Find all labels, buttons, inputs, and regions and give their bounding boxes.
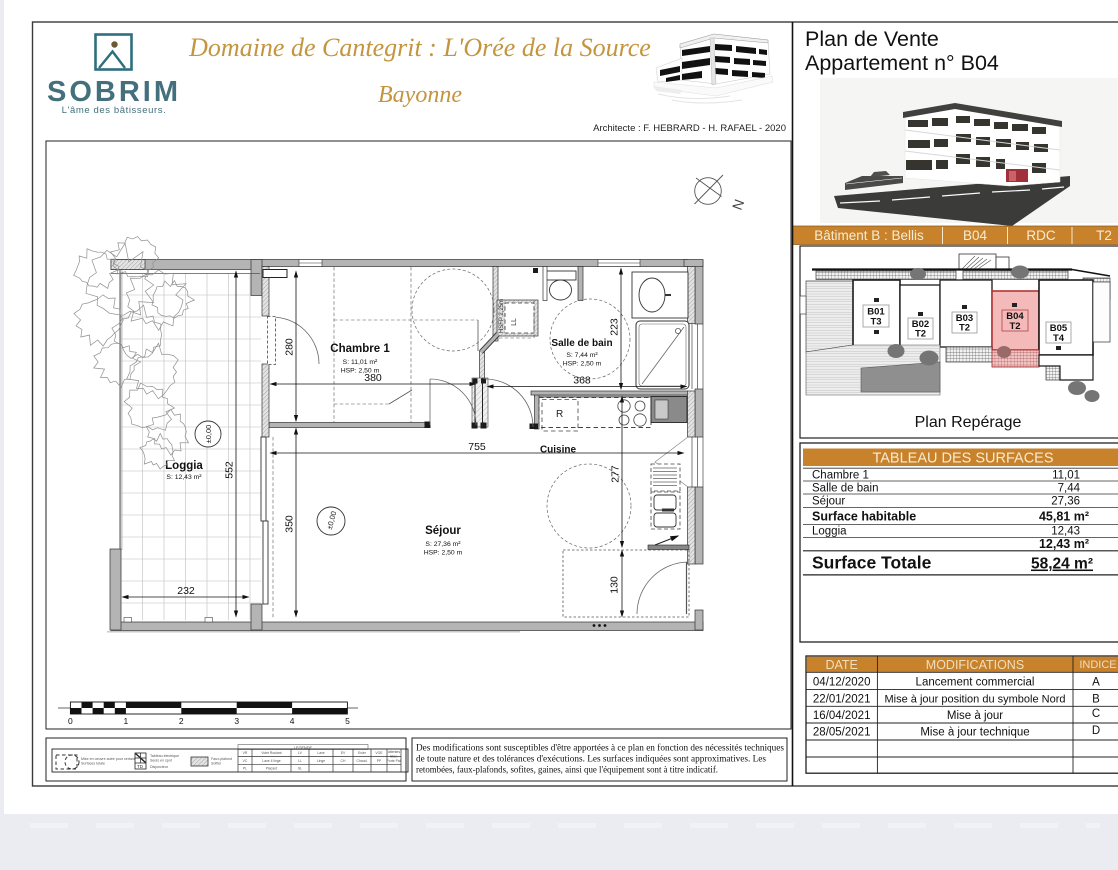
svg-text:04/12/2020: 04/12/2020 [813,677,871,689]
svg-text:Disjoncteur: Disjoncteur [150,765,169,769]
svg-text:S: 7,44 m²: S: 7,44 m² [566,352,598,359]
svg-text:Lave 4 linge: Lave 4 linge [262,759,280,763]
svg-text:Faux-plafond: Faux-plafond [211,757,232,761]
svg-text:Mise à jour: Mise à jour [947,710,1003,722]
svg-text:Salle de bain: Salle de bain [812,482,879,494]
svg-text:Porte Pal.: Porte Pal. [387,759,402,763]
svg-text:Mise à jour technique: Mise à jour technique [920,727,1029,739]
svg-text:A: A [1092,677,1100,689]
svg-text:S: 11,01 m²: S: 11,01 m² [343,359,378,366]
svg-text:Lancement commercial: Lancement commercial [916,677,1035,689]
svg-text:0: 0 [68,716,73,726]
svg-text:3: 3 [234,716,239,726]
svg-text:SL: SL [298,767,302,771]
svg-text:Mise à jour position du symbol: Mise à jour position du symbole Nord [885,693,1066,705]
svg-text:T2: T2 [1009,321,1020,332]
svg-text:R: R [556,409,563,420]
svg-text:130: 130 [609,576,621,594]
svg-text:Sofitel: Sofitel [211,762,221,766]
svg-text:350: 350 [284,515,296,533]
svg-text:Séjour: Séjour [425,525,461,537]
svg-text:Séjour: Séjour [812,495,845,507]
svg-text:T4: T4 [1053,333,1065,344]
svg-text:755: 755 [468,441,486,453]
svg-text:B: B [1092,693,1100,705]
svg-text:INDICE: INDICE [1079,659,1116,671]
svg-text:Surfaces totale: Surfaces totale [81,762,105,766]
svg-text:Salle de bain: Salle de bain [551,338,612,349]
svg-text:Plan de Vente: Plan de Vente [805,27,939,51]
svg-text:T2: T2 [915,329,926,340]
svg-text:T3: T3 [870,317,881,328]
svg-text:TABLEAU DES SURFACES: TABLEAU DES SURFACES [872,451,1053,467]
svg-text:LV: LV [298,751,303,755]
svg-text:7,44: 7,44 [1058,482,1081,494]
svg-text:5: 5 [345,716,350,726]
svg-text:Surface Totale: Surface Totale [812,553,932,573]
svg-text:16/04/2021: 16/04/2021 [813,710,871,722]
svg-text:28/05/2021: 28/05/2021 [813,727,871,739]
svg-text:22/01/2021: 22/01/2021 [813,693,871,705]
svg-text:Chambre 1: Chambre 1 [812,470,869,482]
svg-text:attentes: attentes [388,750,400,754]
svg-text:±0,00: ±0,00 [204,425,213,444]
svg-text:Elec.: Elec. [390,755,398,759]
svg-text:1: 1 [124,716,129,726]
svg-text:HSP: 2,50 m: HSP: 2,50 m [341,368,380,375]
svg-text:Placard: Placard [266,767,278,771]
svg-text:Lave: Lave [317,751,324,755]
svg-text:Evier: Evier [358,751,367,755]
svg-text:de toute nature et des toléran: de toute nature et des tolérances d'exéc… [416,754,766,765]
svg-text:277: 277 [610,465,622,483]
svg-text:VOE: VOE [375,751,383,755]
svg-text:EV: EV [341,751,346,755]
svg-text:TD: TD [137,764,144,769]
svg-text:VR: VR [243,751,248,755]
svg-text:11,01: 11,01 [1052,470,1080,482]
svg-text:280: 280 [284,338,296,356]
svg-text:232: 232 [177,585,195,597]
svg-text:223: 223 [609,318,621,336]
svg-text:N: N [729,197,747,212]
svg-text:HSP: 2,50 m: HSP: 2,50 m [424,550,463,557]
svg-text:T2: T2 [959,323,970,334]
svg-text:DATE: DATE [825,658,857,672]
svg-text:CH: CH [341,759,346,763]
svg-text:retombées, faux-plafonds, sofi: retombées, faux-plafonds, sofites, gaine… [416,765,718,776]
svg-text:PL: PL [243,767,247,771]
svg-text:Chambre 1: Chambre 1 [330,343,390,355]
svg-text:Appartement n° B04: Appartement n° B04 [805,51,999,75]
svg-text:Cuisine: Cuisine [540,445,577,456]
svg-text:Chaud.: Chaud. [357,759,368,763]
svg-text:RDC: RDC [1026,228,1055,243]
svg-text:Des modifications sont suscept: Des modifications sont susceptibles d'êt… [416,743,784,754]
svg-text:Volet Roulant: Volet Roulant [261,751,281,755]
svg-text:MODIFICATIONS: MODIFICATIONS [926,658,1024,672]
svg-text:B04: B04 [963,228,988,243]
svg-text:LL: LL [298,759,302,763]
svg-text:Tableau électrique: Tableau électrique [150,754,179,758]
svg-text:PP: PP [377,759,382,763]
svg-text:45,81 m²: 45,81 m² [1039,510,1089,524]
svg-text:LEGENDE: LEGENDE [294,746,313,750]
svg-text:Linge: Linge [317,759,325,763]
svg-text:Surface habitable: Surface habitable [812,510,916,524]
svg-text:Loggia: Loggia [812,526,847,538]
svg-text:Plan Repérage: Plan Repérage [915,414,1022,431]
svg-text:VC: VC [243,759,248,763]
svg-text:C: C [1092,708,1100,720]
svg-text:Loggia: Loggia [165,460,203,472]
svg-text:4: 4 [290,716,295,726]
svg-text:552: 552 [224,461,236,479]
svg-text:12,43 m²: 12,43 m² [1039,537,1089,551]
svg-text:T2: T2 [1096,228,1112,243]
svg-text:D: D [1092,725,1100,737]
svg-text:368: 368 [573,375,591,387]
svg-text:Mise en oeuvre autre pour cert: Mise en oeuvre autre pour certaines [81,757,139,761]
svg-text:2: 2 [179,716,184,726]
svg-text:S: 27,36 m²: S: 27,36 m² [425,541,461,548]
svg-text:Seuls en spot: Seuls en spot [150,759,172,763]
svg-text:HSP: 2,50 m: HSP: 2,50 m [563,361,602,368]
svg-text:S: 12,43 m²: S: 12,43 m² [166,474,202,481]
svg-text:12,43: 12,43 [1051,526,1080,538]
svg-text:27,36: 27,36 [1051,495,1080,507]
svg-text:58,24 m²: 58,24 m² [1031,556,1093,573]
svg-text:Bâtiment B : Bellis: Bâtiment B : Bellis [814,228,924,243]
svg-text:LL: LL [511,318,518,326]
svg-text:HSFP 2,25m: HSFP 2,25m [499,299,505,333]
